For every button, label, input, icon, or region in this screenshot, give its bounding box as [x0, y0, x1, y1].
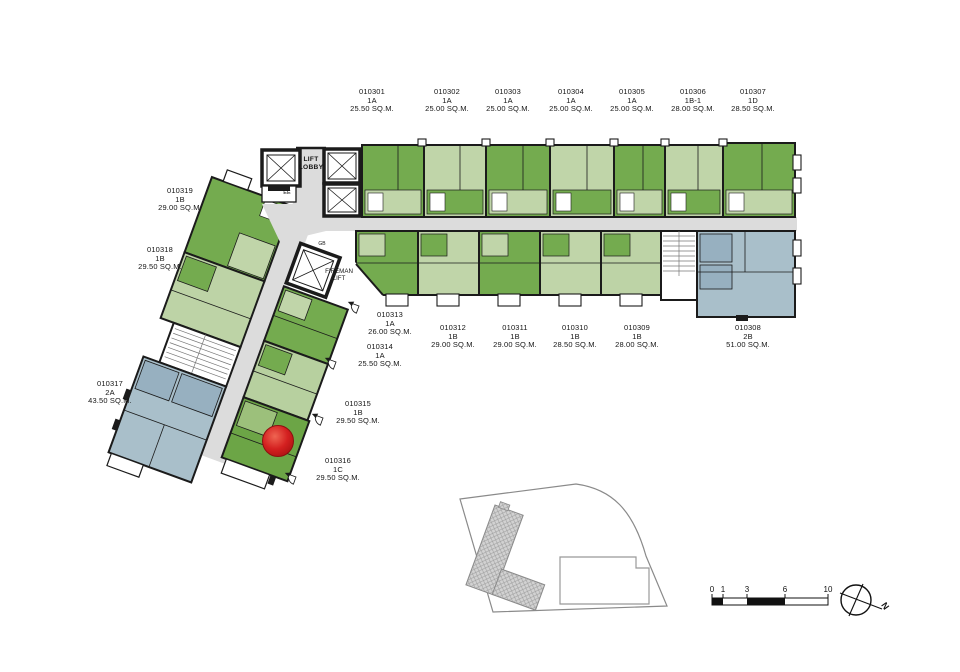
unit-010307[interactable] — [723, 143, 801, 217]
unit-label-area: 25.00 SQ.M. — [425, 105, 469, 114]
unit-label-010308: 0103082B51.00 SQ.M. — [726, 324, 770, 350]
unit-label-010305: 0103051A25.00 SQ.M. — [610, 88, 654, 114]
unit-label-area: 29.50 SQ.M. — [336, 417, 380, 426]
unit-010303[interactable] — [486, 145, 550, 217]
main-corridor — [300, 217, 797, 231]
unit-010302[interactable] — [424, 145, 486, 217]
lift-shaft — [324, 184, 360, 216]
unit-010304[interactable] — [550, 145, 614, 217]
unit-label-area: 25.00 SQ.M. — [549, 105, 593, 114]
unit-label-area: 25.50 SQ.M. — [358, 360, 402, 369]
unit-label-010310: 0103101B28.50 SQ.M. — [553, 324, 597, 350]
unit-label-010301: 0103011A25.50 SQ.M. — [350, 88, 394, 114]
selected-unit-marker[interactable] — [263, 426, 294, 457]
unit-label-area: 43.50 SQ.M. — [88, 397, 132, 406]
unit-label-010304: 0103041A25.00 SQ.M. — [549, 88, 593, 114]
unit-010306[interactable] — [665, 145, 723, 217]
unit-label-area: 25.00 SQ.M. — [486, 105, 530, 114]
ee-room-label: EE — [283, 190, 290, 196]
scale-tick-0: 0 — [710, 585, 714, 594]
unit-010305[interactable] — [614, 145, 665, 217]
unit-010310[interactable] — [540, 231, 601, 306]
unit-010309[interactable] — [601, 231, 661, 306]
unit-label-area: 28.50 SQ.M. — [731, 105, 775, 114]
electrical-room — [262, 186, 296, 202]
unit-label-area: 26.00 SQ.M. — [368, 328, 412, 337]
unit-label-area: 25.50 SQ.M. — [350, 105, 394, 114]
unit-label-010313: 0103131A26.00 SQ.M. — [368, 311, 412, 337]
lift-lobby-label: LIFT LOBBY — [291, 156, 331, 171]
unit-010308[interactable] — [697, 231, 801, 321]
unit-label-010306: 0103061B-128.00 SQ.M. — [671, 88, 715, 114]
unit-label-010315: 0103151B29.50 SQ.M. — [336, 400, 380, 426]
floor-plan-page: 0103011A25.50 SQ.M.0103021A25.00 SQ.M.01… — [0, 0, 960, 672]
fireman-lift-label: FIREMAN LIFT — [318, 268, 360, 282]
unit-010311[interactable] — [479, 231, 540, 306]
scale-tick-6: 6 — [783, 585, 787, 594]
floor-plan-drawing — [0, 0, 960, 672]
unit-label-010311: 0103111B29.00 SQ.M. — [493, 324, 537, 350]
unit-label-area: 28.00 SQ.M. — [615, 341, 659, 350]
unit-label-area: 25.00 SQ.M. — [610, 105, 654, 114]
unit-010301[interactable] — [362, 145, 424, 217]
unit-label-010318: 0103181B29.50 SQ.M. — [138, 246, 182, 272]
unit-label-010302: 0103021A25.00 SQ.M. — [425, 88, 469, 114]
unit-label-area: 29.00 SQ.M. — [431, 341, 475, 350]
north-arrow-icon — [840, 584, 882, 616]
unit-label-010319: 0103191B29.00 SQ.M. — [158, 187, 202, 213]
scale-bar — [712, 594, 828, 605]
unit-label-010314: 0103141A25.50 SQ.M. — [358, 343, 402, 369]
unit-010312[interactable] — [418, 231, 479, 306]
main-stairwell — [661, 231, 697, 300]
unit-label-010307: 0103071D28.50 SQ.M. — [731, 88, 775, 114]
unit-label-010316: 0103161C29.50 SQ.M. — [316, 457, 360, 483]
unit-label-area: 29.50 SQ.M. — [316, 474, 360, 483]
unit-label-area: 28.50 SQ.M. — [553, 341, 597, 350]
unit-label-010303: 0103031A25.00 SQ.M. — [486, 88, 530, 114]
scale-tick-1: 1 — [721, 585, 725, 594]
unit-label-area: 28.00 SQ.M. — [671, 105, 715, 114]
site-key-plan — [460, 484, 667, 612]
unit-label-010317: 0103172A43.50 SQ.M. — [88, 380, 132, 406]
gb-room-label: GB — [318, 241, 325, 247]
unit-label-010312: 0103121B29.00 SQ.M. — [431, 324, 475, 350]
unit-label-area: 51.00 SQ.M. — [726, 341, 770, 350]
scale-tick-10: 10 — [824, 585, 833, 594]
top-row-units — [362, 139, 801, 217]
scale-tick-3: 3 — [745, 585, 749, 594]
bottom-row-units — [355, 231, 801, 321]
key-plan-other-building — [560, 557, 649, 604]
unit-label-area: 29.50 SQ.M. — [138, 263, 182, 272]
unit-label-010309: 0103091B28.00 SQ.M. — [615, 324, 659, 350]
unit-010313[interactable] — [355, 231, 418, 306]
unit-label-area: 29.00 SQ.M. — [493, 341, 537, 350]
unit-label-area: 29.00 SQ.M. — [158, 204, 202, 213]
